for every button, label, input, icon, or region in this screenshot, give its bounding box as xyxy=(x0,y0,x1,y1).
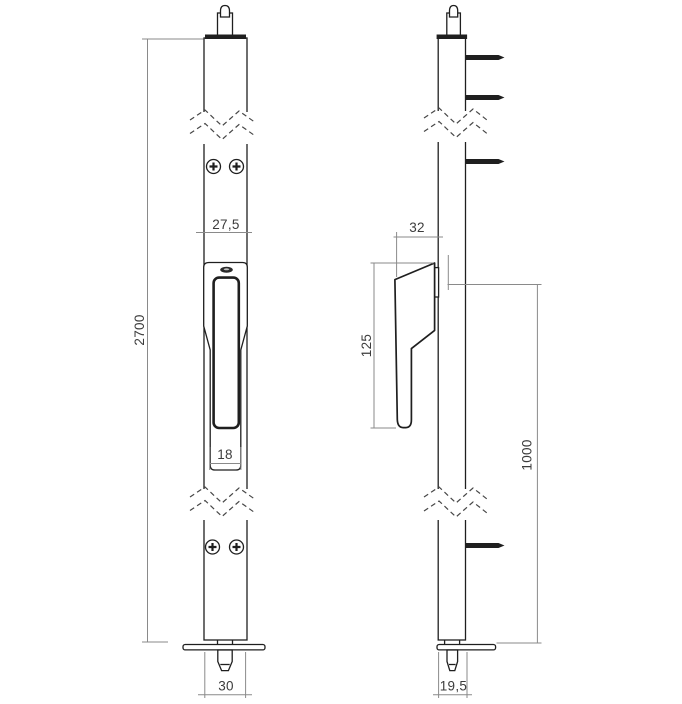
front-break-top xyxy=(190,110,256,144)
front-faceplate xyxy=(204,263,248,471)
front-break-bottom xyxy=(190,487,256,520)
dim-overall-height: 2700 xyxy=(132,39,204,642)
side-rod-top-cap xyxy=(437,35,468,40)
dim-label-base-width: 30 xyxy=(218,679,234,694)
dim-label-base-depth: 19,5 xyxy=(440,679,467,694)
break-gap xyxy=(198,112,254,144)
wood-screw-icon xyxy=(466,55,505,60)
side-view: 32 125 1000 19,5 xyxy=(359,6,542,699)
front-handle-grip xyxy=(214,278,239,428)
side-break-top xyxy=(424,108,487,142)
wood-screw-icon xyxy=(466,543,505,548)
wood-screw-icon xyxy=(466,95,505,100)
dim-label-handle-length: 125 xyxy=(359,334,374,357)
break-gap xyxy=(433,489,470,520)
dim-label-handle-width: 18 xyxy=(217,447,233,462)
front-pin-dome xyxy=(221,6,230,18)
front-foot-plate xyxy=(183,645,265,650)
keyhole-slot-highlight xyxy=(224,268,230,270)
break-gap xyxy=(433,111,470,142)
side-screws xyxy=(466,55,505,164)
side-foot-plate xyxy=(437,645,496,650)
dim-label-overall-height: 2700 xyxy=(132,314,147,345)
drawing-canvas: 27,5 2700 18 30 xyxy=(0,0,682,704)
dim-label-plate-width: 27,5 xyxy=(212,217,239,232)
wood-screw-icon xyxy=(466,159,505,164)
technical-drawing: 27,5 2700 18 30 xyxy=(0,0,682,704)
front-view: 27,5 2700 18 30 xyxy=(132,6,265,699)
side-handle xyxy=(395,263,439,428)
front-foot xyxy=(183,640,265,671)
side-pin-dome xyxy=(450,6,458,18)
front-bottom-pin xyxy=(218,650,232,671)
break-gap xyxy=(198,489,254,520)
side-break-bottom xyxy=(424,487,487,520)
side-foot xyxy=(437,640,496,671)
front-top-pin xyxy=(218,6,233,39)
side-handle-lever xyxy=(395,263,435,428)
side-top-pin xyxy=(447,6,461,39)
front-rod-top-cap xyxy=(205,35,246,40)
dim-label-lower-section: 1000 xyxy=(520,439,535,470)
dim-label-handle-depth: 32 xyxy=(409,220,425,235)
side-bottom-pin xyxy=(447,650,458,671)
